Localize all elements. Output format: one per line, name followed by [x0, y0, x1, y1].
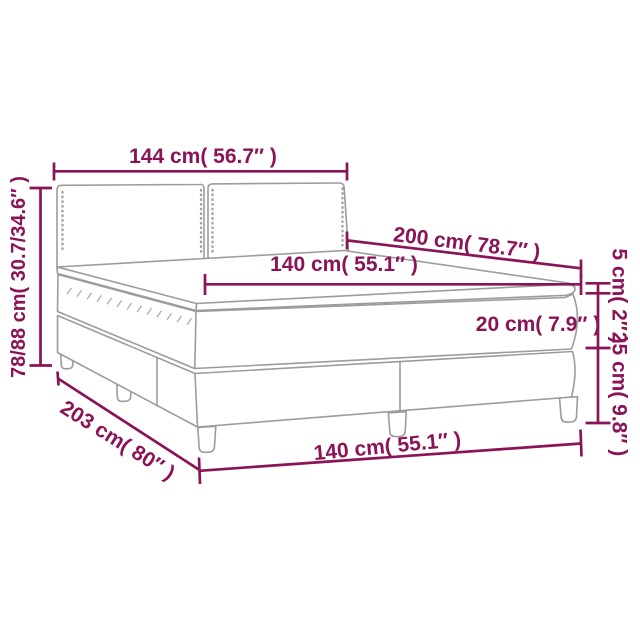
bed-leg	[198, 426, 216, 452]
headboard-right-panel	[208, 183, 349, 261]
bed-leg	[560, 397, 578, 422]
topper-corner-edge	[196, 304, 197, 311]
dim-label-topper-thickness: 5 cm( 2″ )	[608, 248, 631, 343]
headboard-left-panel	[57, 184, 204, 269]
dim-label-bed-height: 78/88 cm( 30.7/34.6″ )	[8, 176, 30, 378]
bed-dimension-diagram: 144 cm( 56.7″ ) 78/88 cm( 30.7/34.6″ ) 2…	[0, 0, 640, 640]
dim-label-base-width: 140 cm( 55.1″ )	[313, 428, 462, 465]
dim-label-headboard-width: 144 cm( 56.7″ )	[129, 145, 277, 168]
diagram-canvas: 144 cm( 56.7″ ) 78/88 cm( 30.7/34.6″ ) 2…	[0, 0, 640, 640]
dim-line-right-bracket	[586, 283, 611, 423]
dim-label-base-height: 25 cm( 9.8″ )	[608, 332, 631, 456]
dim-label-total-length: 203 cm( 80″ )	[56, 396, 179, 485]
dim-line-bed-height	[30, 188, 53, 366]
dim-label-mattress-width: 140 cm( 55.1″ )	[270, 253, 418, 276]
dim-label-mattress-thickness: 20 cm( 7.9″ )	[476, 313, 600, 336]
